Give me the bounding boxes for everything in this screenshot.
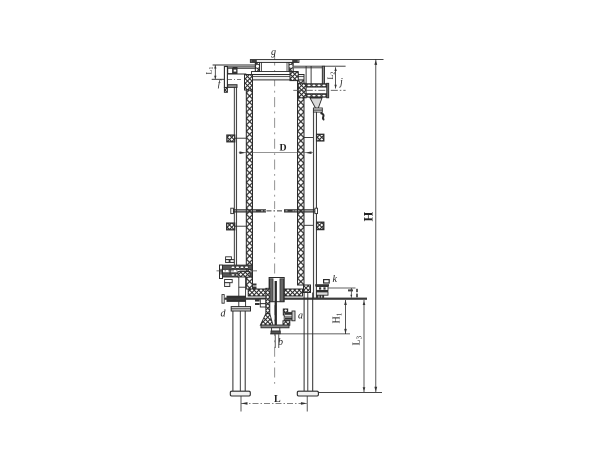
svg-text:f: f <box>218 79 222 90</box>
svg-text:b: b <box>278 337 283 348</box>
svg-text:a: a <box>298 311 303 322</box>
svg-text:L1: L1 <box>205 67 216 75</box>
svg-text:H1: H1 <box>332 312 344 323</box>
svg-text:j: j <box>338 77 343 88</box>
svg-text:L: L <box>274 394 281 405</box>
svg-text:L3: L3 <box>352 335 364 345</box>
svg-text:D: D <box>280 143 287 154</box>
svg-text:d: d <box>221 309 227 320</box>
svg-text:H: H <box>362 212 376 222</box>
svg-text:g: g <box>271 47 276 58</box>
svg-text:k: k <box>333 274 338 285</box>
svg-text:L2: L2 <box>326 72 337 80</box>
